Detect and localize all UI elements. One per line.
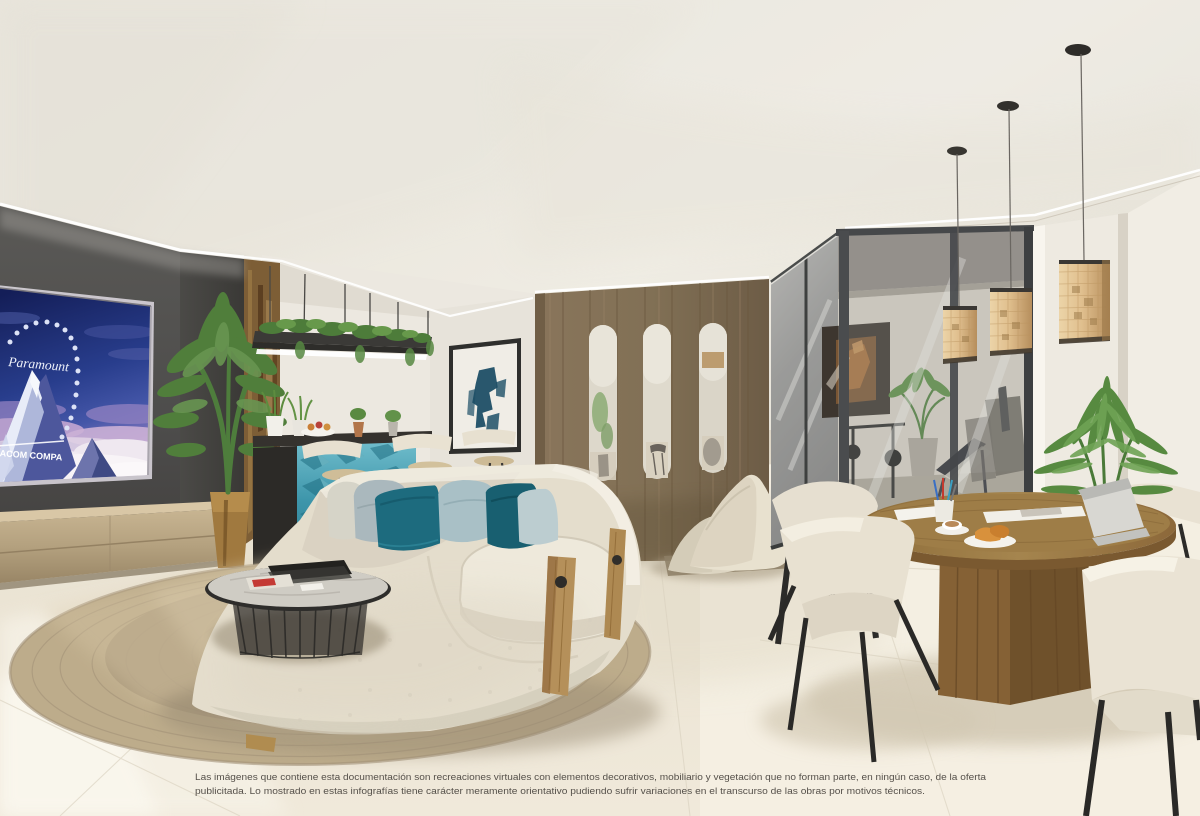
svg-text:Las imágenes que contiene esta: Las imágenes que contiene esta documenta… <box>195 772 987 783</box>
svg-text:publicitada. Lo mostrado en es: publicitada. Lo mostrado en estas infogr… <box>195 786 925 797</box>
